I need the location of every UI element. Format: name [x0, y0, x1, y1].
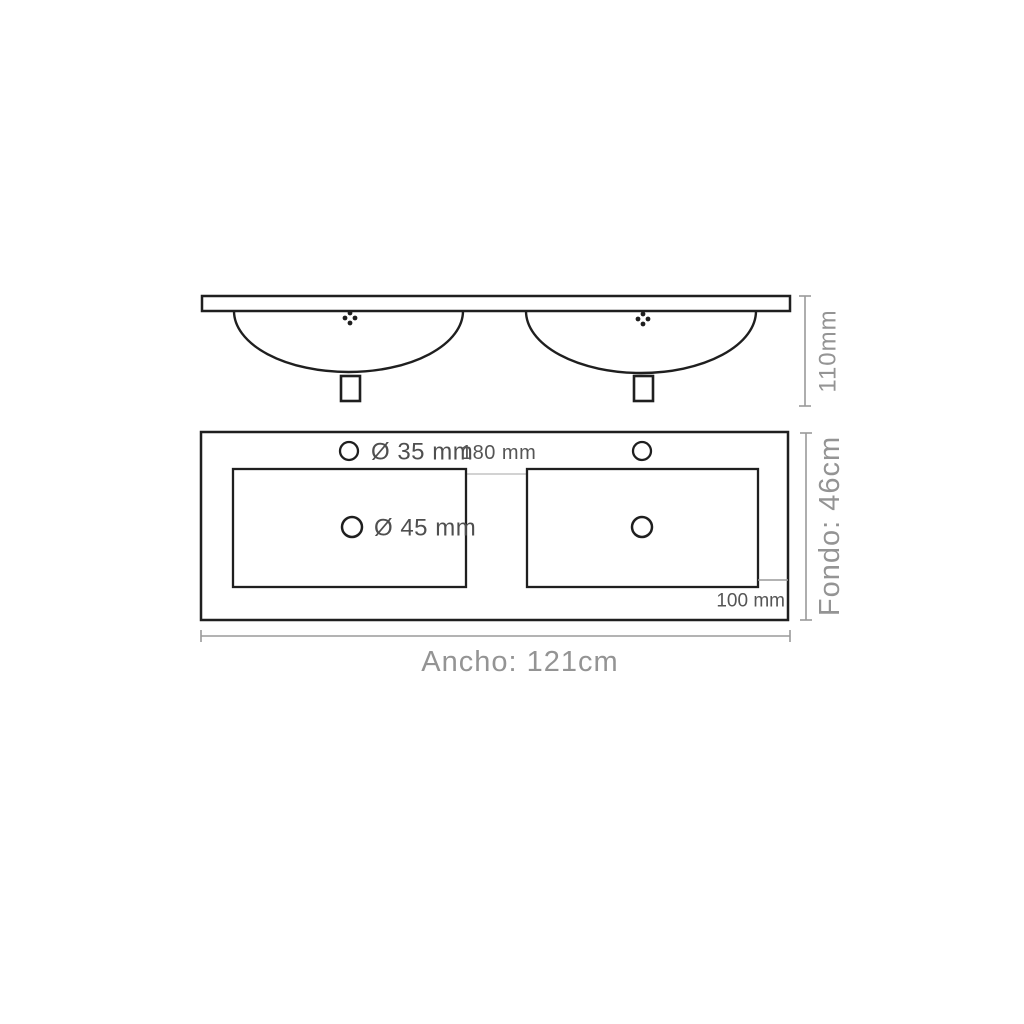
drain-hole-right	[632, 517, 652, 537]
edge-offset-label: 100 mm	[716, 591, 785, 612]
double-basin-dimension-diagram: 110mm Ø 35 mm 180 mm Ø 45 mm 100 m	[0, 0, 1024, 1024]
width-dimension-line	[201, 630, 790, 642]
depth-label: Fondo: 46cm	[814, 436, 846, 616]
basin-right-profile	[526, 311, 756, 373]
drain-stub-left	[341, 376, 360, 401]
basin-spacing-label: 180 mm	[461, 442, 536, 464]
width-label: Ancho: 121cm	[421, 646, 618, 678]
side-view: 110mm	[202, 296, 842, 406]
height-dimension-line	[799, 296, 811, 406]
basin-left-profile	[234, 311, 463, 372]
faucet-diameter-label: Ø 35 mm	[371, 439, 473, 466]
technical-drawing-canvas: 110mm Ø 35 mm 180 mm Ø 45 mm 100 m	[0, 0, 1024, 1024]
countertop-slab	[202, 296, 790, 311]
depth-dimension-line	[800, 433, 812, 620]
drain-stub-right	[634, 376, 653, 401]
faucet-hole-right	[633, 442, 651, 460]
drain-hole-left	[342, 517, 362, 537]
faucet-hole-left	[340, 442, 358, 460]
height-label: 110mm	[815, 309, 842, 392]
drain-diameter-label: Ø 45 mm	[374, 515, 476, 542]
plan-view: Ø 35 mm 180 mm Ø 45 mm 100 mm Fondo: 46c…	[201, 432, 846, 678]
